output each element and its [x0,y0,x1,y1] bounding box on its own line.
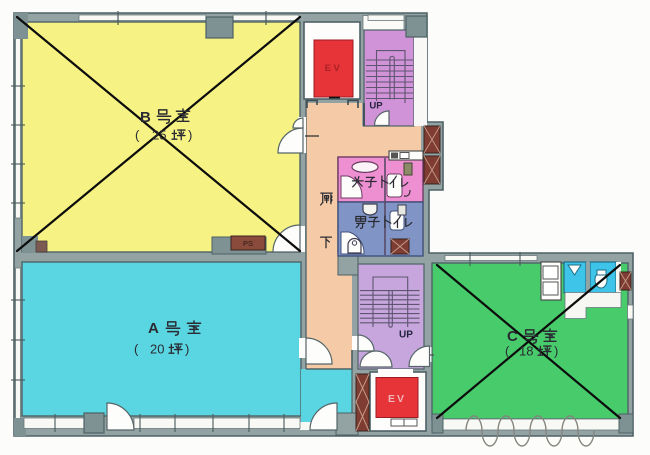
svg-text:): ) [188,128,192,143]
svg-text:20: 20 [150,342,164,357]
svg-text:18: 18 [519,344,533,359]
svg-text:EV: EV [388,393,406,405]
svg-text:): ) [185,342,189,357]
svg-text:EV: EV [325,63,343,74]
svg-text:(: ( [134,342,139,357]
svg-text:(: ( [505,344,510,359]
svg-text:UP: UP [399,330,413,341]
svg-text:B: B [140,109,151,126]
svg-text:UP: UP [369,101,383,112]
svg-text:(: ( [135,128,140,143]
svg-text:A: A [148,320,159,337]
svg-text:): ) [554,344,558,359]
svg-text:PS: PS [243,239,253,248]
svg-text:25: 25 [152,128,166,143]
svg-text:C: C [507,328,518,345]
